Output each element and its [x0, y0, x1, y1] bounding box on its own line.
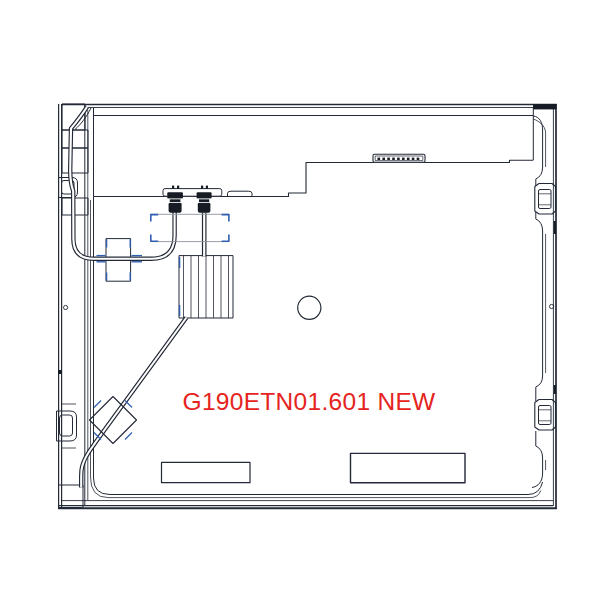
drawing-svg: G190ETN01.601 NEW — [0, 0, 616, 616]
label-area-right — [351, 453, 466, 482]
pcb-cover-outline — [94, 107, 534, 197]
right-frame-contour — [532, 116, 556, 488]
edge-bump — [228, 191, 253, 196]
pin-hole-left — [64, 305, 68, 309]
latch-tab-right-upper — [535, 184, 556, 215]
marker-corners — [151, 215, 229, 242]
panel-outer-frame — [58, 104, 557, 509]
inspection-marker-box — [151, 214, 230, 241]
latch-tab-right-lower — [535, 400, 556, 431]
screw-hole — [298, 296, 321, 319]
board-connector-strip — [373, 154, 425, 162]
backlight-connectors — [163, 186, 222, 213]
corner-block — [533, 104, 556, 109]
part-number-label: G190ETN01.601 NEW — [183, 388, 437, 415]
lcd-panel-rear-drawing: G190ETN01.601 NEW — [0, 0, 616, 616]
striped-component-box — [179, 256, 233, 318]
label-area-left — [162, 462, 251, 482]
drawing-root: G190ETN01.601 NEW — [57, 104, 557, 509]
